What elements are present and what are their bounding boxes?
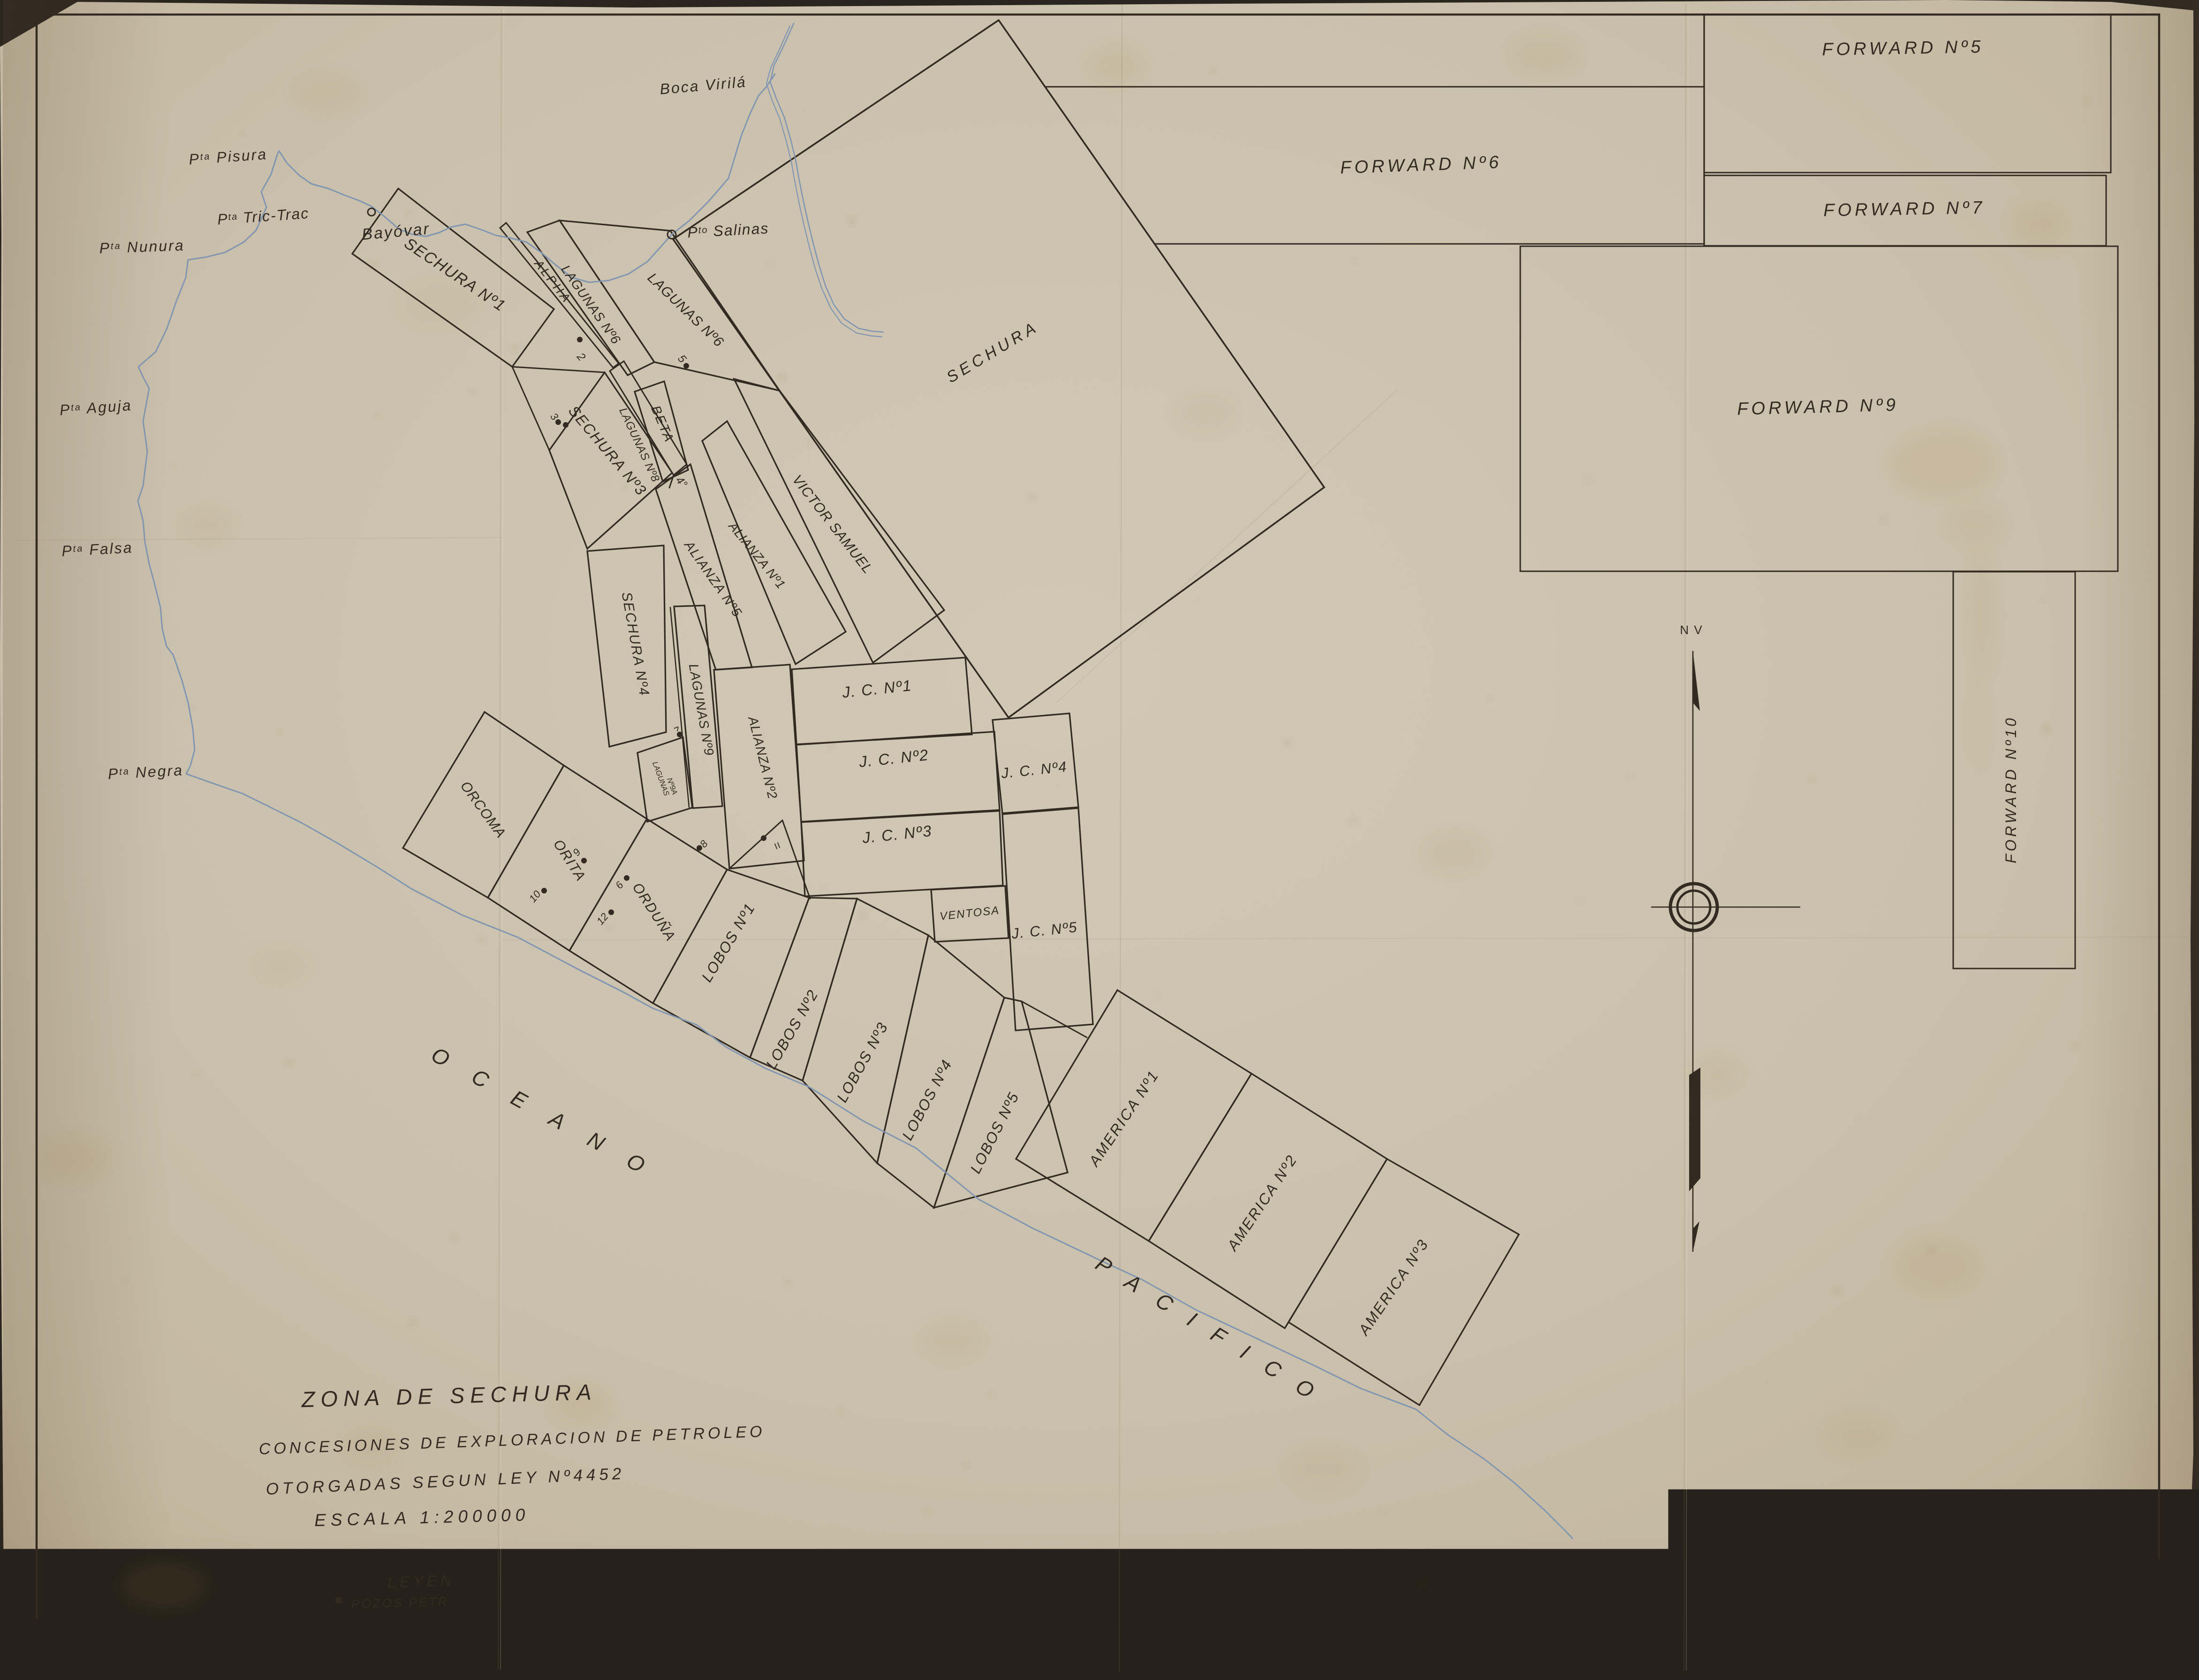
svg-text:FORWARD Nº10: FORWARD Nº10 [2002,715,2019,863]
svg-text:LEYENDA: LEYENDA [387,1570,483,1591]
svg-text:FORWARD Nº7: FORWARD Nº7 [1823,198,1986,220]
svg-text:N V: N V [1680,623,1703,637]
svg-text:FORWARD Nº5: FORWARD Nº5 [1822,37,1984,60]
